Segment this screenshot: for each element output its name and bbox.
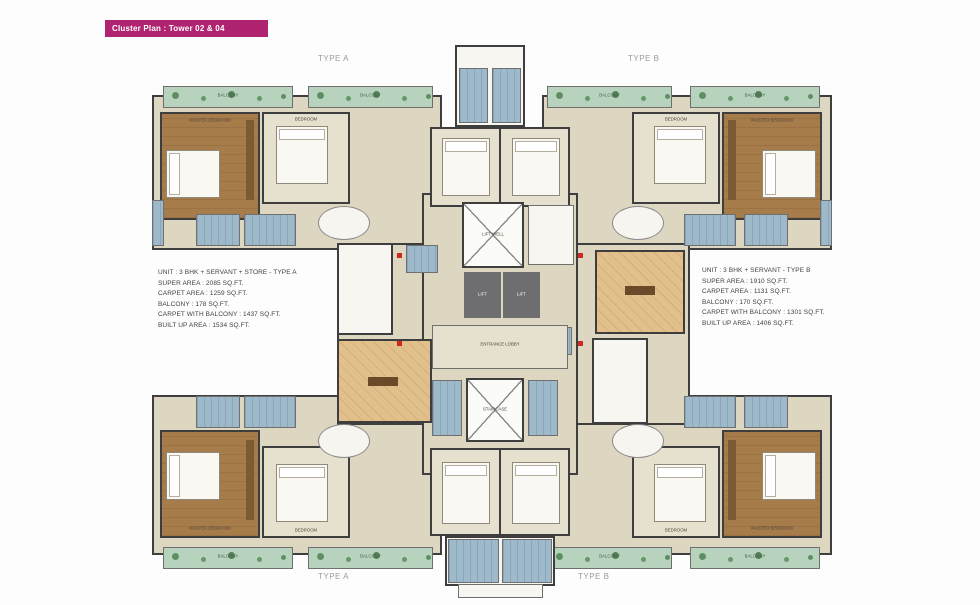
plan-title-bar: Cluster Plan : Tower 02 & 04 bbox=[105, 20, 268, 37]
sofa-icon bbox=[368, 377, 398, 386]
bed-icon bbox=[654, 126, 706, 184]
bed-icon bbox=[512, 138, 560, 196]
balcony-strip: BALCONY bbox=[690, 547, 820, 569]
spec-line: UNIT : 3 BHK + SERVANT - TYPE B bbox=[702, 266, 877, 277]
wardrobe-icon bbox=[728, 440, 736, 520]
toilet-bottom-1 bbox=[448, 539, 499, 583]
type-label-top-right: TYPE B bbox=[628, 54, 659, 63]
balcony-strip: BALCONY bbox=[547, 547, 672, 569]
plan-title: Cluster Plan : Tower 02 & 04 bbox=[112, 24, 225, 33]
wardrobe-icon bbox=[728, 120, 736, 200]
balcony-strip: BALCONY bbox=[547, 86, 672, 108]
wardrobe-icon bbox=[246, 120, 254, 200]
kitchen-left bbox=[406, 245, 438, 273]
toilet bbox=[744, 214, 788, 246]
spec-line: CARPET WITH BALCONY : 1437 SQ.FT. bbox=[158, 310, 333, 321]
bed-icon bbox=[276, 464, 328, 522]
toilet bbox=[196, 396, 240, 428]
toilet-top-1 bbox=[459, 68, 488, 123]
entry-marker bbox=[578, 341, 583, 346]
lift-1: LIFT bbox=[464, 272, 501, 318]
spec-line: BALCONY : 178 SQ.FT. bbox=[158, 300, 333, 311]
sofa-icon bbox=[625, 286, 655, 295]
entry-marker bbox=[578, 253, 583, 258]
balcony-strip: BALCONY bbox=[308, 547, 433, 569]
dining-table-icon bbox=[318, 424, 370, 458]
bed-icon bbox=[442, 462, 490, 524]
balcony-strip: BALCONY bbox=[308, 86, 433, 108]
bed-icon bbox=[166, 452, 220, 500]
dining-table-icon bbox=[612, 424, 664, 458]
spec-line: BUILT UP AREA : 1534 SQ.FT. bbox=[158, 321, 333, 332]
entry-marker bbox=[397, 253, 402, 258]
spec-line: BUILT UP AREA : 1406 SQ.FT. bbox=[702, 319, 877, 330]
type-label-top-left: TYPE A bbox=[318, 54, 349, 63]
floor-plan-page: Cluster Plan : Tower 02 & 04 TYPE A TYPE… bbox=[0, 0, 980, 605]
toilet-bottom-2 bbox=[502, 539, 552, 583]
wardrobe-icon bbox=[246, 440, 254, 520]
store-room-right bbox=[592, 338, 648, 424]
wall-divider bbox=[499, 448, 501, 536]
toilet-top-2 bbox=[492, 68, 521, 123]
spec-line: UNIT : 3 BHK + SERVANT + STORE - TYPE A bbox=[158, 268, 333, 279]
bed-icon bbox=[512, 462, 560, 524]
spec-line: CARPET AREA : 1131 SQ.FT. bbox=[702, 287, 877, 298]
toilet bbox=[684, 214, 736, 246]
entry-marker bbox=[397, 341, 402, 346]
spec-line: SUPER AREA : 1910 SQ.FT. bbox=[702, 277, 877, 288]
balcony-strip: BALCONY bbox=[690, 86, 820, 108]
toilet bbox=[528, 380, 558, 436]
entrance-step bbox=[458, 584, 543, 598]
spec-line: CARPET WITH BALCONY : 1301 SQ.FT. bbox=[702, 308, 877, 319]
staircase-shaft: STAIRCASE bbox=[466, 378, 524, 442]
bed-icon bbox=[442, 138, 490, 196]
toilet bbox=[152, 200, 164, 246]
bed-icon bbox=[654, 464, 706, 522]
bed-icon bbox=[276, 126, 328, 184]
entrance-lobby: ENTRANCE LOBBY bbox=[432, 325, 568, 369]
wall-divider bbox=[499, 127, 501, 207]
spec-block-type-b: UNIT : 3 BHK + SERVANT - TYPE B SUPER AR… bbox=[702, 266, 877, 329]
spec-line: BALCONY : 170 SQ.FT. bbox=[702, 298, 877, 309]
spec-line: CARPET AREA : 1259 SQ.FT. bbox=[158, 289, 333, 300]
lift-2: LIFT bbox=[503, 272, 540, 318]
lift-well-shaft: LIFT WELL bbox=[462, 202, 524, 268]
type-label-bottom-left: TYPE A bbox=[318, 572, 349, 581]
toilet bbox=[432, 380, 462, 436]
staircase-room bbox=[528, 205, 574, 265]
toilet bbox=[684, 396, 736, 428]
bed-icon bbox=[762, 150, 816, 198]
balcony-strip: BALCONY bbox=[163, 547, 293, 569]
balcony-strip: BALCONY bbox=[163, 86, 293, 108]
bed-icon bbox=[762, 452, 816, 500]
bed-icon bbox=[166, 150, 220, 198]
toilet bbox=[244, 396, 296, 428]
type-label-bottom-right: TYPE B bbox=[578, 572, 609, 581]
toilet bbox=[196, 214, 240, 246]
toilet bbox=[744, 396, 788, 428]
spec-line: SUPER AREA : 2085 SQ.FT. bbox=[158, 279, 333, 290]
toilet bbox=[820, 200, 832, 246]
dining-table-icon bbox=[612, 206, 664, 240]
dining-table-icon bbox=[318, 206, 370, 240]
spec-block-type-a: UNIT : 3 BHK + SERVANT + STORE - TYPE A … bbox=[158, 268, 333, 331]
store-room-left bbox=[337, 243, 393, 335]
toilet bbox=[244, 214, 296, 246]
